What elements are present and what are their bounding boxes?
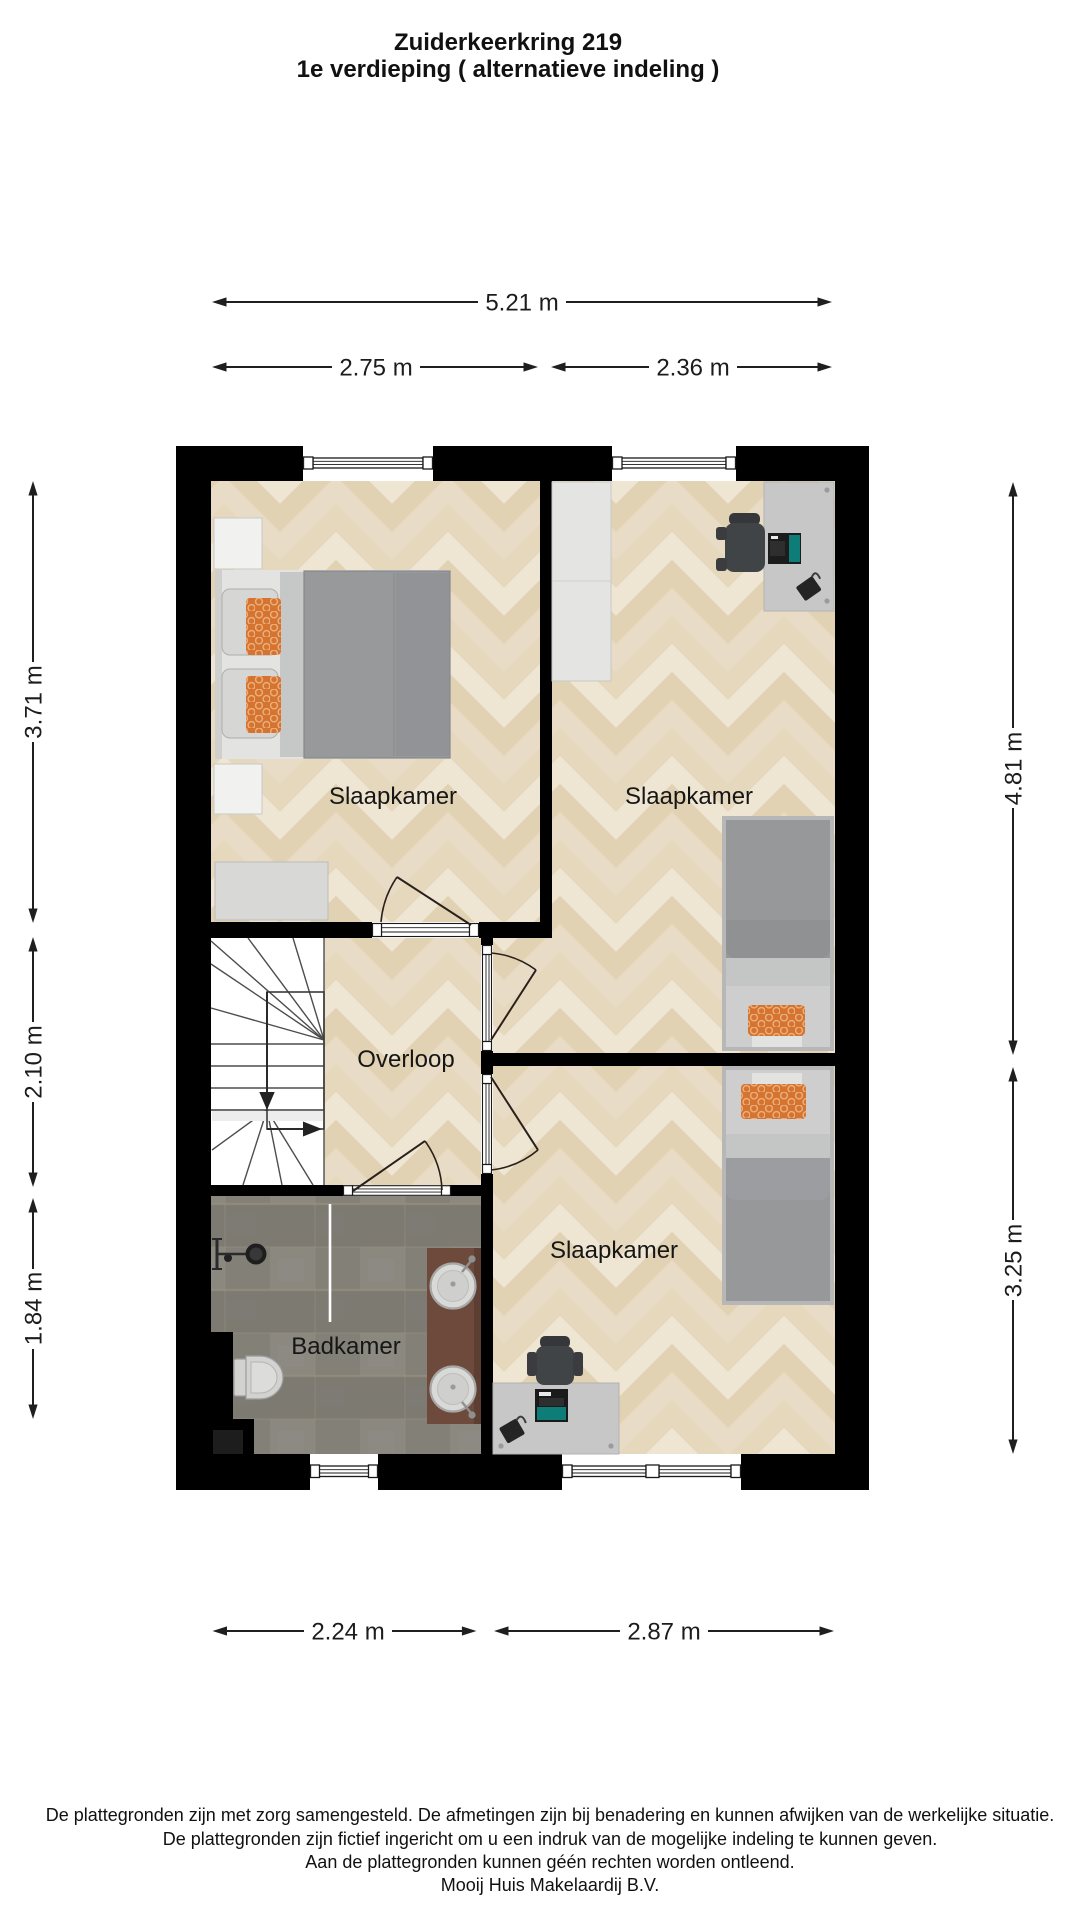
svg-text:Overloop: Overloop xyxy=(357,1046,454,1073)
svg-text:Slaapkamer: Slaapkamer xyxy=(329,783,457,810)
svg-text:Zuiderkeerkring 219: Zuiderkeerkring 219 xyxy=(394,29,622,56)
svg-text:De plattegronden zijn met zorg: De plattegronden zijn met zorg samengest… xyxy=(46,1805,1055,1825)
svg-text:3.71 m: 3.71 m xyxy=(21,665,48,738)
svg-text:Slaapkamer: Slaapkamer xyxy=(550,1237,678,1264)
svg-text:5.21 m: 5.21 m xyxy=(485,290,558,317)
svg-text:2.10 m: 2.10 m xyxy=(21,1025,48,1098)
svg-text:2.87 m: 2.87 m xyxy=(627,1619,700,1646)
svg-text:Aan de plattegronden kunnen gé: Aan de plattegronden kunnen géén rechten… xyxy=(305,1852,794,1872)
svg-text:Mooij Huis Makelaardij B.V.: Mooij Huis Makelaardij B.V. xyxy=(441,1875,659,1895)
svg-text:1e verdieping ( alternatieve i: 1e verdieping ( alternatieve indeling ) xyxy=(297,56,720,83)
svg-text:2.75 m: 2.75 m xyxy=(339,355,412,382)
svg-text:3.25 m: 3.25 m xyxy=(1001,1224,1028,1297)
svg-text:4.81 m: 4.81 m xyxy=(1001,732,1028,805)
svg-text:De plattegronden zijn fictief: De plattegronden zijn fictief ingericht … xyxy=(163,1829,937,1849)
svg-text:Slaapkamer: Slaapkamer xyxy=(625,783,753,810)
svg-text:Badkamer: Badkamer xyxy=(291,1333,400,1360)
svg-text:2.24 m: 2.24 m xyxy=(311,1619,384,1646)
svg-text:1.84 m: 1.84 m xyxy=(21,1272,48,1345)
svg-text:2.36 m: 2.36 m xyxy=(656,355,729,382)
